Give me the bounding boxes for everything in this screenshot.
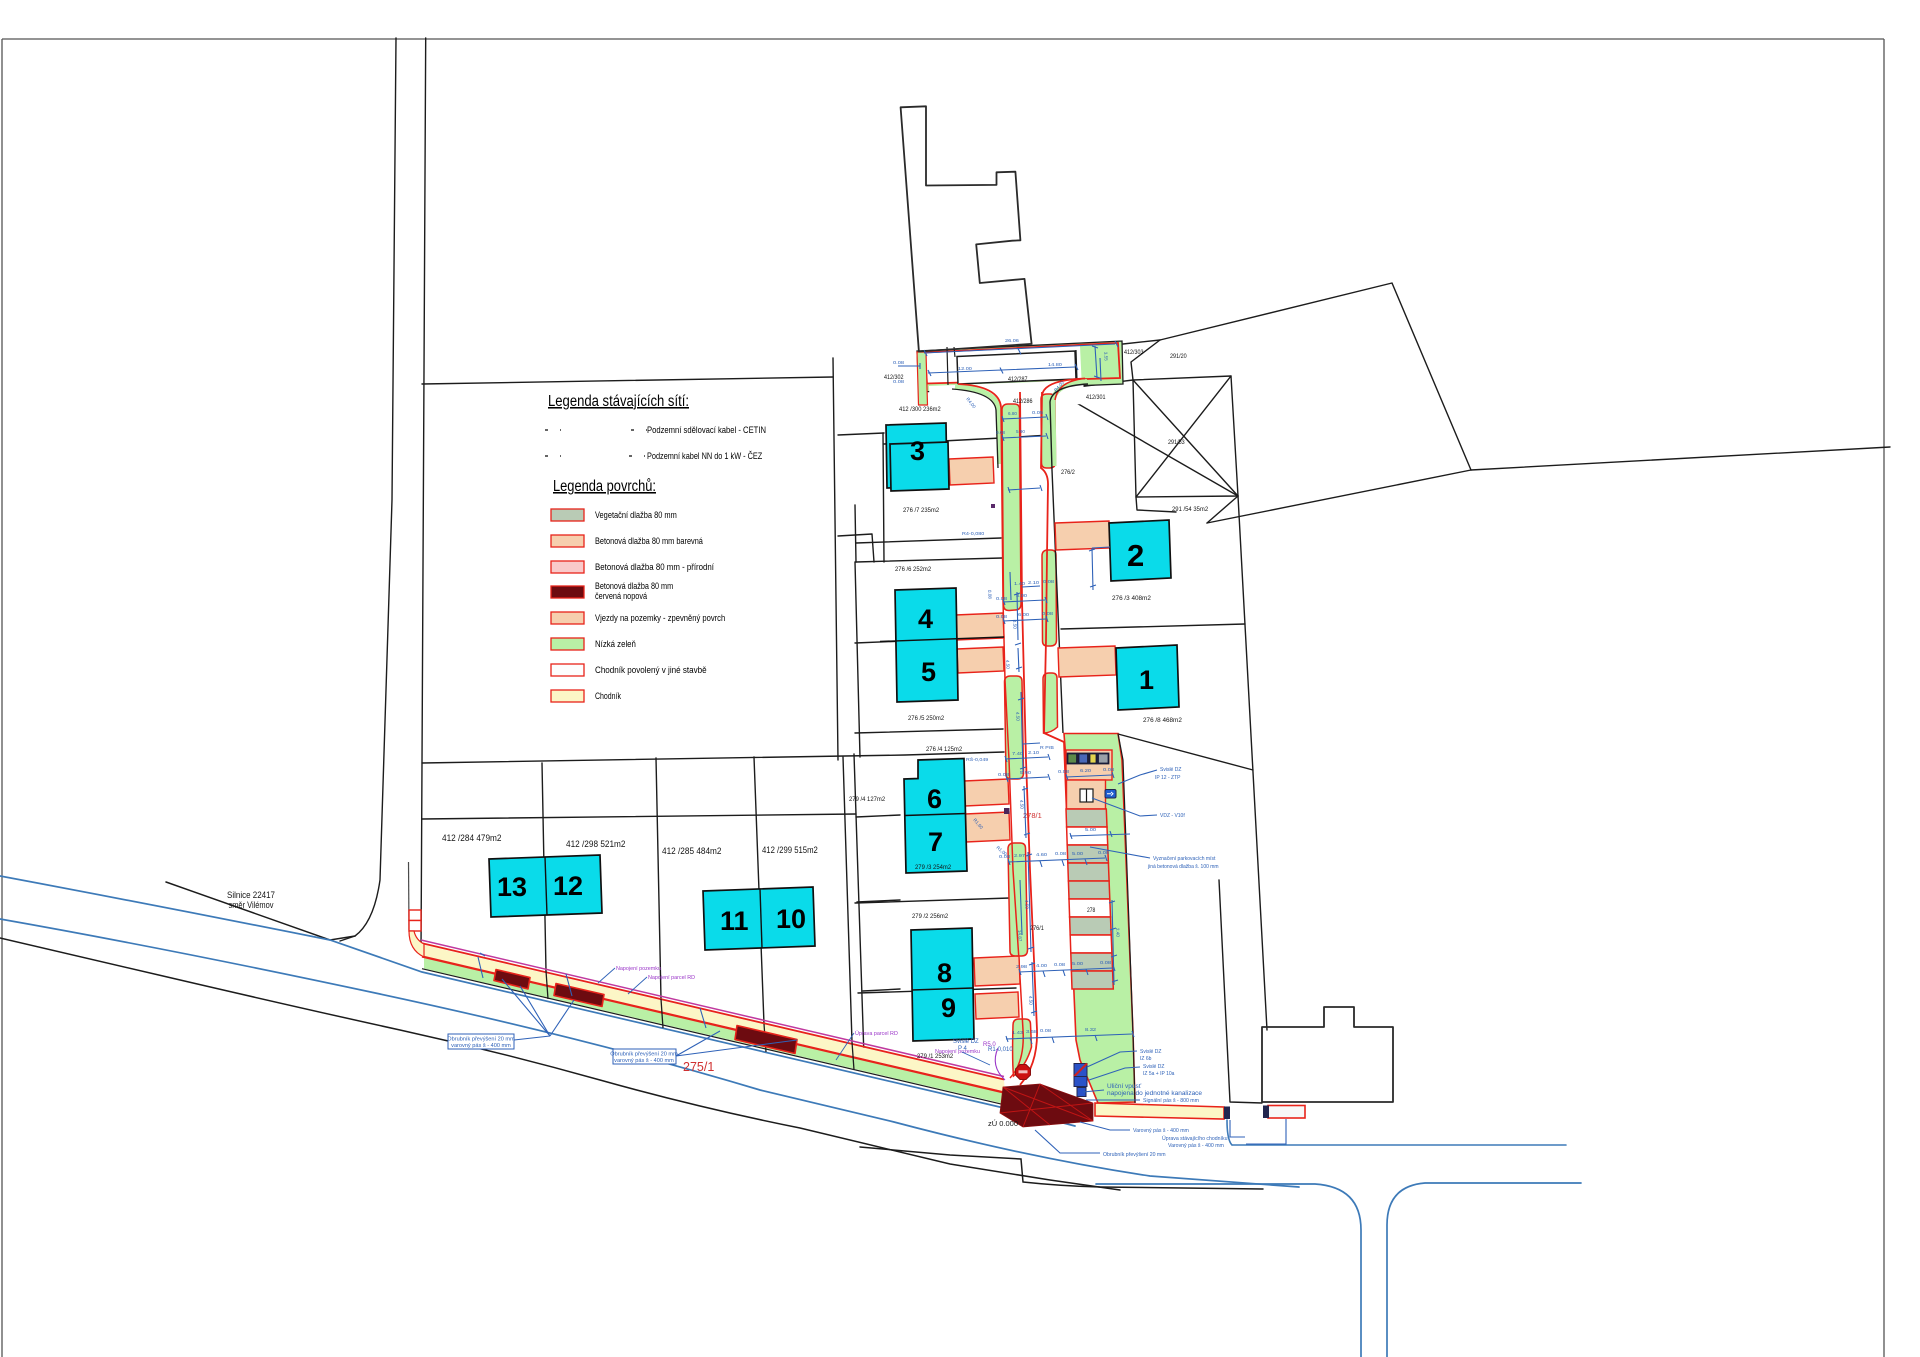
svg-text:14.87: 14.87 [1017,930,1023,942]
svg-text:0.08: 0.08 [1055,851,1067,856]
svg-text:směr Vilémov: směr Vilémov [229,900,274,910]
svg-text:0.05: 0.05 [1032,410,1044,415]
svg-text:Vjezdy na pozemky - zpevněný p: Vjezdy na pozemky - zpevněný povrch [595,613,725,623]
svg-text:0.08: 0.08 [1058,769,1070,774]
svg-text:4.50: 4.50 [1005,660,1010,670]
svg-text:26.06: 26.06 [1005,338,1019,343]
svg-text:Podzemní kabel NN do 1 kW - ČE: Podzemní kabel NN do 1 kW - ČEZ [647,451,763,461]
svg-text:276 /7 235m2: 276 /7 235m2 [903,507,940,514]
svg-text:2.98: 2.98 [1016,964,1028,969]
svg-text:5: 5 [921,657,936,687]
svg-text:6.80: 6.80 [1008,411,1017,416]
svg-text:13: 13 [497,872,527,902]
svg-text:291/20: 291/20 [1170,353,1187,360]
svg-text:4.50: 4.50 [1024,900,1029,910]
svg-text:2: 2 [1127,538,1144,573]
svg-text:varovný pás š - 400 mm: varovný pás š - 400 mm [614,1058,674,1064]
svg-text:2.10: 2.10 [1028,580,1040,585]
svg-text:12.00: 12.00 [958,366,972,371]
svg-text:jiná betonová dlažba š. 100 mm: jiná betonová dlažba š. 100 mm [1147,864,1219,870]
svg-text:5.90: 5.90 [1016,429,1025,434]
svg-text:Varovný pás š - 400 mm: Varovný pás š - 400 mm [1168,1143,1224,1149]
svg-text:0.08: 0.08 [996,614,1008,619]
svg-text:Svislé DZ: Svislé DZ [1143,1064,1164,1070]
svg-text:Chodník: Chodník [595,691,621,701]
svg-text:291/53: 291/53 [1168,439,1185,446]
svg-text:4: 4 [918,604,933,634]
svg-text:412/303: 412/303 [1124,349,1144,356]
svg-text:14.80: 14.80 [1048,362,1062,367]
svg-text:278: 278 [1087,907,1096,914]
svg-text:Signální pás š - 800 mm: Signální pás š - 800 mm [1143,1098,1199,1104]
svg-text:4.60: 4.60 [1036,852,1048,857]
svg-text:412 /284 479m2: 412 /284 479m2 [442,833,502,843]
svg-text:0.08: 0.08 [893,379,905,384]
svg-text:276 /5 250m2: 276 /5 250m2 [908,715,945,722]
svg-text:Svislé DZ: Svislé DZ [1160,767,1181,773]
svg-text:4.50: 4.50 [1012,620,1017,630]
svg-text:412 /285 484m2: 412 /285 484m2 [662,846,722,856]
svg-text:Betonová dlažba 80 mm barevná: Betonová dlažba 80 mm barevná [595,536,703,546]
svg-text:0.08: 0.08 [987,590,992,600]
svg-text:napojena do jednotné kanalizac: napojena do jednotné kanalizace [1107,1090,1202,1097]
svg-text:VDZ - V10f: VDZ - V10f [1160,813,1185,819]
svg-text:279 /3 254m2: 279 /3 254m2 [915,864,952,871]
svg-text:3.68: 3.68 [1026,1029,1038,1034]
svg-text:Legenda stávajících sítí:: Legenda stávajících sítí: [548,393,689,410]
svg-text:Napojení pozemku: Napojení pozemku [616,966,661,972]
svg-text:10: 10 [776,904,806,934]
svg-text:278/1: 278/1 [1023,811,1042,820]
svg-text:276 /4 125m2: 276 /4 125m2 [926,746,963,753]
svg-text:412 /299 515m2: 412 /299 515m2 [762,845,818,855]
svg-text:1.40: 1.40 [1014,581,1026,586]
svg-text:Betonová dlažba 80 mm: Betonová dlažba 80 mm [595,581,673,591]
svg-text:Úprava parcel RD: Úprava parcel RD [855,1030,898,1037]
svg-text:R1-0,010: R1-0,010 [988,1047,1013,1053]
svg-text:412/301: 412/301 [1086,394,1106,401]
svg-text:Nízká zeleň: Nízká zeleň [595,639,636,649]
svg-text:5.00: 5.00 [1072,961,1084,966]
svg-text:279 /4 127m2: 279 /4 127m2 [849,796,886,803]
svg-text:1: 1 [1139,665,1154,695]
svg-text:6.20: 6.20 [1080,768,1092,773]
svg-text:Napojení parcel RD: Napojení parcel RD [648,975,695,981]
svg-text:0.08: 0.08 [996,430,1005,435]
svg-text:279 /2 256m2: 279 /2 256m2 [912,913,949,920]
svg-text:8: 8 [937,958,952,988]
svg-text:412/286: 412/286 [1013,398,1033,405]
svg-text:Vegetační dlažba 80 mm: Vegetační dlažba 80 mm [595,510,677,520]
svg-text:červená nopová: červená nopová [595,591,647,601]
svg-text:0.08: 0.08 [998,772,1010,777]
svg-text:2.97: 2.97 [1014,853,1026,858]
svg-text:Úprava stávajícího chodníku: Úprava stávajícího chodníku [1162,1135,1228,1142]
svg-text:RŠ-0,049: RŠ-0,049 [966,756,989,762]
svg-text:0.08: 0.08 [996,596,1008,601]
svg-text:Legenda povrchů:: Legenda povrchů: [553,478,656,495]
svg-text:Svislé DZ: Svislé DZ [1140,1049,1161,1055]
svg-text:Vyznačení parkovacích míst: Vyznačení parkovacích míst [1153,856,1216,862]
svg-text:0.08: 0.08 [1043,579,1055,584]
svg-text:276 /6 252m2: 276 /6 252m2 [895,566,932,573]
svg-text:291 /54 35m2: 291 /54 35m2 [1172,506,1209,513]
svg-text:4.50: 4.50 [1028,996,1033,1006]
svg-text:4.50: 4.50 [1019,800,1024,810]
svg-text:0.08: 0.08 [1100,960,1112,965]
svg-text:0.08: 0.08 [1042,611,1054,616]
svg-text:Podzemní sdělovací kabel - CET: Podzemní sdělovací kabel - CETIN [647,425,766,435]
svg-text:Svislé DZ: Svislé DZ [953,1039,979,1045]
svg-text:412 /298 521m2: 412 /298 521m2 [566,839,626,849]
svg-text:5.00: 5.00 [1085,827,1097,832]
svg-text:IZ 5a + IP 10a: IZ 5a + IP 10a [1143,1071,1175,1077]
svg-text:Silnice 22417: Silnice 22417 [227,890,275,900]
svg-text:Obrubník převýšení 20 mm: Obrubník převýšení 20 mm [1103,1152,1166,1158]
svg-text:276/2: 276/2 [1061,469,1075,476]
svg-text:Betonová dlažba 80 mm - přírod: Betonová dlažba 80 mm - přírodní [595,562,714,572]
svg-text:11: 11 [720,906,749,936]
svg-text:zÚ 0.000: zÚ 0.000 [988,1119,1018,1128]
svg-text:275/1: 275/1 [683,1060,714,1074]
svg-text:Varovný pás š - 400 mm: Varovný pás š - 400 mm [1133,1128,1189,1134]
svg-text:2.10: 2.10 [1028,750,1040,755]
svg-text:3: 3 [910,436,925,466]
svg-text:9: 9 [941,993,956,1023]
svg-text:8.00: 8.00 [1016,593,1028,598]
svg-text:276 /8 468m2: 276 /8 468m2 [1143,717,1182,724]
svg-text:276 /3 408m2: 276 /3 408m2 [1112,595,1151,602]
svg-text:P 4: P 4 [958,1046,968,1052]
svg-text:412/287: 412/287 [1008,376,1028,383]
svg-text:R4-0,080: R4-0,080 [962,531,985,536]
svg-text:Obrubník převýšení 20 mm: Obrubník převýšení 20 mm [447,1037,515,1043]
svg-text:0.08: 0.08 [1040,1028,1052,1033]
svg-text:12: 12 [553,871,583,901]
svg-text:Obrubník převýšení 20 mm: Obrubník převýšení 20 mm [610,1052,678,1058]
svg-text:1.43: 1.43 [1012,1030,1024,1035]
svg-text:IP 12 - ZTP: IP 12 - ZTP [1155,775,1181,781]
svg-text:7.40: 7.40 [1012,751,1024,756]
svg-text:276/1: 276/1 [1030,925,1044,932]
svg-text:0.08: 0.08 [893,360,905,365]
svg-text:0.08: 0.08 [1054,962,1066,967]
svg-text:4.50: 4.50 [1015,712,1020,722]
svg-text:R PrB: R PrB [1040,745,1054,750]
svg-text:5.00: 5.00 [1072,851,1084,856]
svg-text:Uliční vpusť: Uliční vpusť [1107,1083,1142,1090]
svg-text:3.55: 3.55 [1103,352,1109,362]
svg-text:5.90: 5.90 [1020,770,1032,775]
svg-text:4.00: 4.00 [1036,963,1048,968]
svg-text:412 /300 236m2: 412 /300 236m2 [899,406,941,413]
svg-text:6: 6 [927,784,942,814]
svg-text:6.00: 6.00 [1018,612,1030,617]
svg-text:varovný pás š - 400 mm: varovný pás š - 400 mm [451,1043,511,1049]
svg-text:0.08: 0.08 [1103,767,1115,772]
svg-text:2.40: 2.40 [1115,928,1120,938]
svg-text:IZ 6b: IZ 6b [1140,1056,1152,1062]
svg-text:8.32: 8.32 [1085,1027,1097,1032]
svg-text:Chodník povolený v jiné stavbě: Chodník povolený v jiné stavbě [595,665,707,675]
svg-text:7: 7 [928,827,943,857]
